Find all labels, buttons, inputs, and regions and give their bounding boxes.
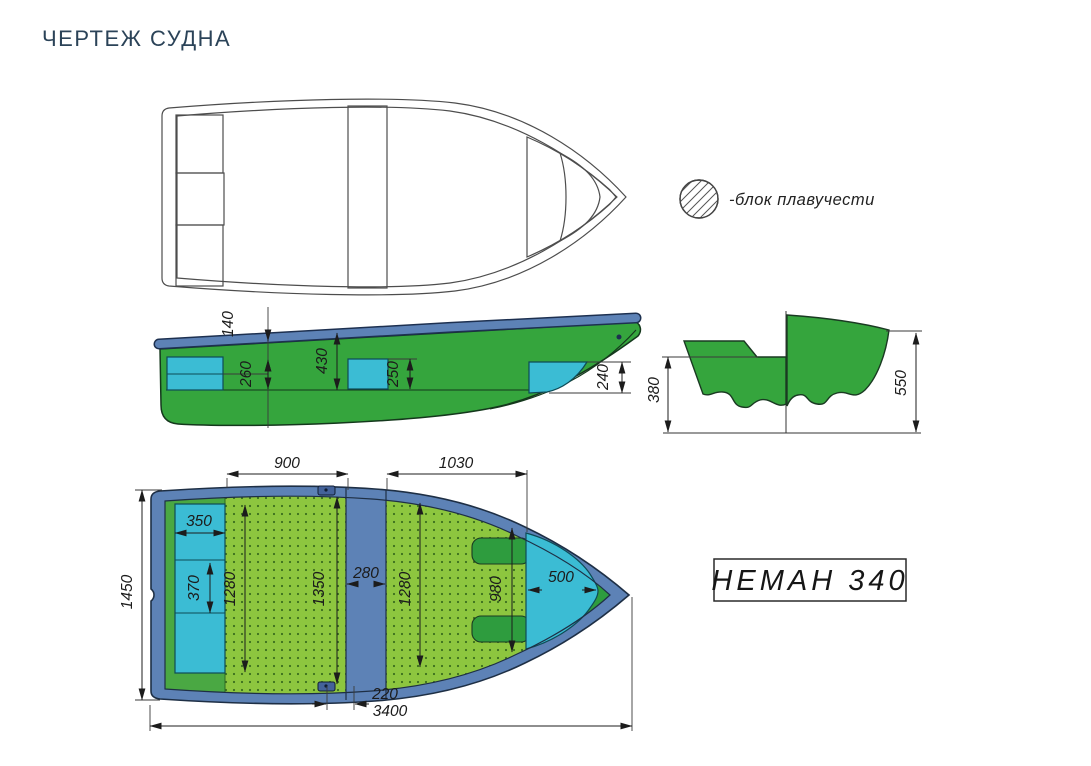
dim-140: 140 xyxy=(220,311,237,337)
bow-eye xyxy=(617,335,622,340)
transom-half-section xyxy=(684,341,786,407)
dim-550: 550 xyxy=(893,370,910,396)
dim-370: 370 xyxy=(186,575,203,601)
bow-brace-upper xyxy=(472,538,530,564)
top-view-inner-hull xyxy=(177,107,617,287)
dim-240: 240 xyxy=(595,364,612,391)
dim-500: 500 xyxy=(548,569,574,586)
bow-brace-lower xyxy=(472,616,530,642)
middle-seat-plan xyxy=(346,484,386,700)
midship-flotation-block xyxy=(348,106,387,288)
dim-1450: 1450 xyxy=(119,574,136,609)
bow-flotation-block xyxy=(527,137,616,257)
bow-seat-plan xyxy=(526,533,598,649)
dim-350: 350 xyxy=(186,513,212,530)
side-view: 140 260 430 250 240 xyxy=(159,307,640,428)
dim-380: 380 xyxy=(646,377,663,403)
bow-seat-side xyxy=(529,362,587,393)
middle-seat-side xyxy=(348,359,388,389)
legend-label: -блок плавучести xyxy=(729,191,875,209)
dim-260: 260 xyxy=(238,361,255,388)
dim-900: 900 xyxy=(274,455,300,472)
boat-drawing-page: ЧЕРТЕЖ СУДНА xyxy=(0,0,1091,766)
plan-view: 900 1030 350 370 1280 1350 280 1280 xyxy=(119,455,632,731)
bow-half-section xyxy=(787,315,889,406)
stern-flotation-blocks xyxy=(176,115,224,286)
dim-980: 980 xyxy=(488,576,505,602)
model-name: НЕМАН 340 xyxy=(711,565,908,597)
dim-1030: 1030 xyxy=(439,455,474,472)
top-view-outer-hull xyxy=(162,99,626,295)
dim-1350: 1350 xyxy=(311,571,328,606)
section-view: 380 550 xyxy=(646,311,922,433)
dim-430: 430 xyxy=(314,348,331,374)
dim-250: 250 xyxy=(385,361,402,388)
top-view-flotation-layout xyxy=(162,99,626,295)
dim-1280-right: 1280 xyxy=(397,571,414,606)
dim-220: 220 xyxy=(371,686,398,703)
drawing-canvas: -блок плавучести 140 260 xyxy=(0,0,1091,766)
legend: -блок плавучести xyxy=(680,180,875,218)
dim-3400: 3400 xyxy=(373,703,408,720)
model-plate: НЕМАН 340 xyxy=(711,559,908,601)
dim-1280-left: 1280 xyxy=(222,571,239,606)
dim-280: 280 xyxy=(352,565,379,582)
